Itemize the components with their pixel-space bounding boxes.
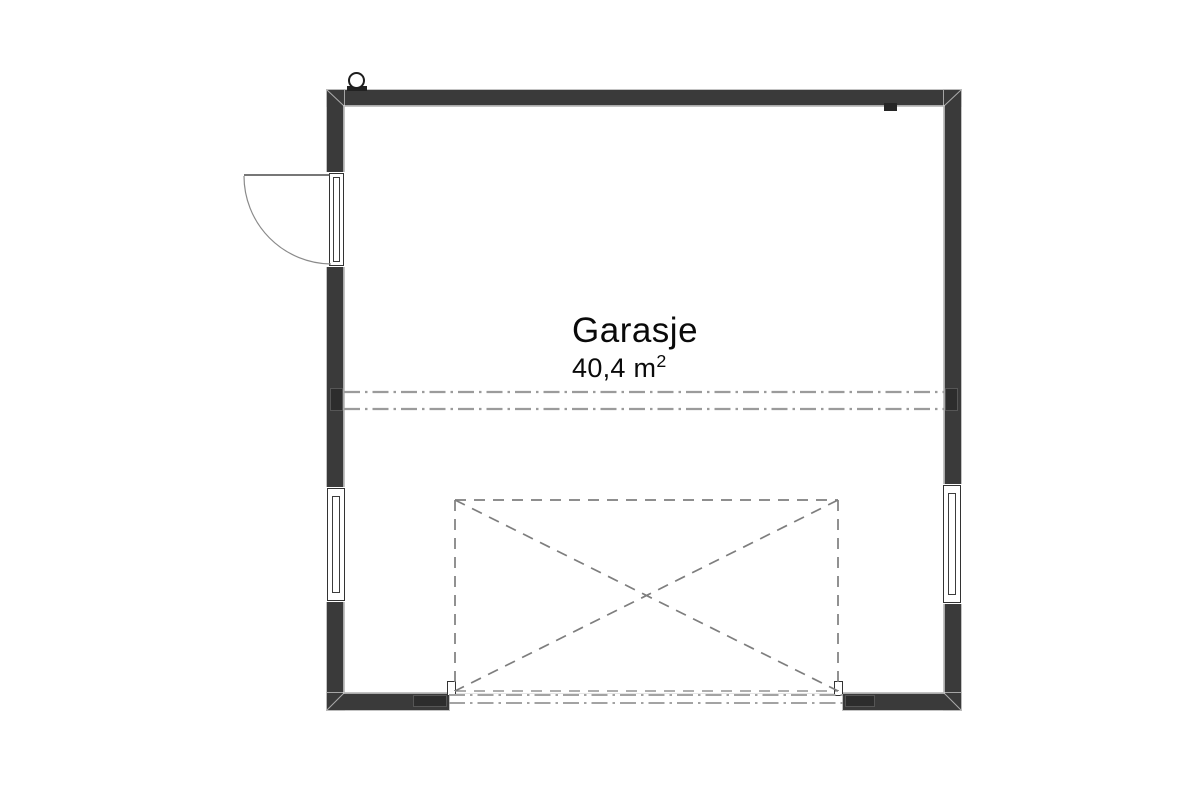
miter-top-left [327,90,344,106]
corner-miter-lines [327,90,961,710]
room-label: Garasje 40,4 m2 [572,313,698,384]
room-name: Garasje [572,313,698,350]
garage-door-opening-marker [455,500,838,691]
miter-bottom-right [944,693,961,710]
miter-top-right [944,90,961,106]
room-area-superscript: 2 [656,351,666,371]
room-area-value: 40,4 m [572,353,656,383]
miter-bottom-left [327,693,344,710]
garage-door-line [449,695,847,703]
floor-plan-canvas: Garasje 40,4 m2 [0,0,1200,799]
room-area: 40,4 m2 [572,353,698,384]
ceiling-beam-line [344,392,944,409]
door-swing-arc [244,176,331,264]
plan-linework [0,0,1200,799]
